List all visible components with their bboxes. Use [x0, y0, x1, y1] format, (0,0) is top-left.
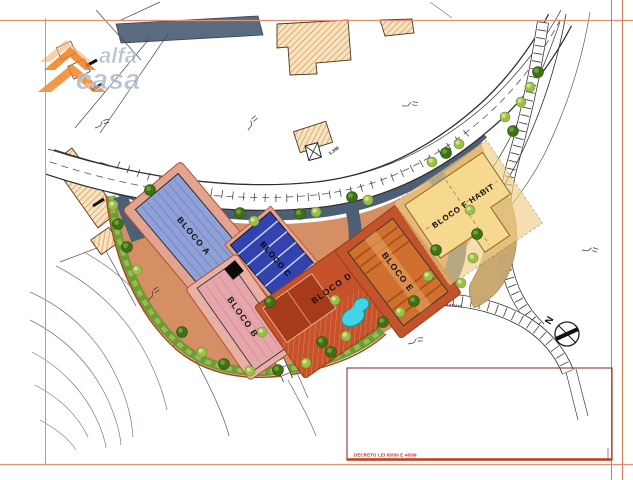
site-plan-drawing: Travessa do Outeiro BLOCO A BLOCO C [0, 0, 633, 480]
site-plan-page: Travessa do Outeiro BLOCO A BLOCO C [0, 0, 633, 480]
existing-building [380, 19, 414, 36]
regulation-note: DECRETO LEI 65/99 E 46/99 [354, 453, 417, 458]
watermark-word-2: casa [76, 64, 141, 96]
